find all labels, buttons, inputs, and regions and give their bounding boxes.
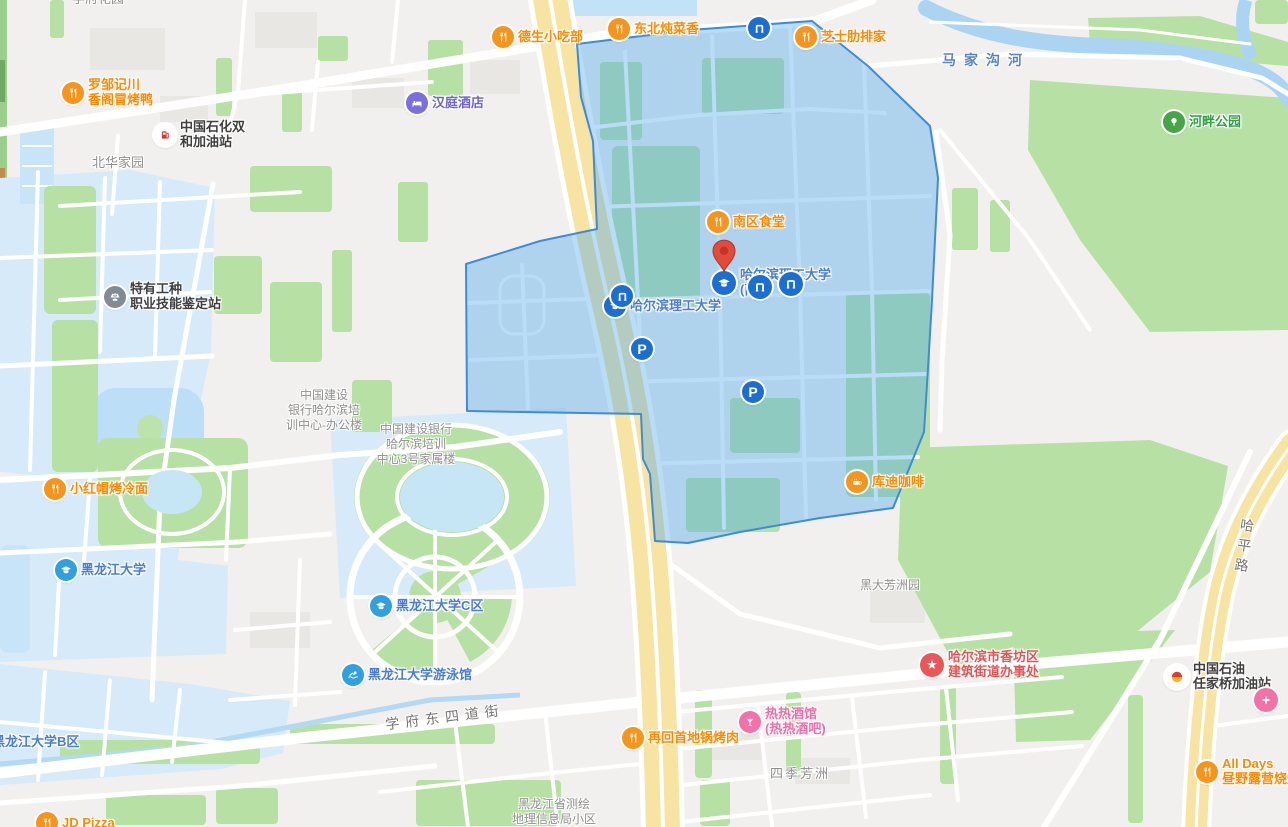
poi-hlju-swimming[interactable]: 黑龙江大学游泳馆	[342, 664, 472, 686]
campus-gate-icon-south-b[interactable]	[779, 272, 803, 296]
parking-icon-a[interactable]: P	[631, 338, 653, 360]
label-beihua: 北华家园	[92, 155, 144, 171]
poi-desheng-snack[interactable]: 德生小吃部	[492, 26, 583, 48]
campus-gate-icon-south-a[interactable]	[748, 275, 772, 299]
restaurant-icon	[62, 82, 84, 104]
poi-luozou-roast-duck[interactable]: 罗邹记川香阁冒烤鸭	[62, 78, 153, 108]
hotel-icon	[406, 92, 428, 114]
gas-station-icon	[1165, 665, 1189, 689]
scales-icon	[104, 286, 126, 308]
label-siji-fangzhou: 四季芳洲	[770, 766, 830, 782]
label-heida-fangzhou: 黑大芳洲园	[860, 578, 920, 593]
restaurant-icon	[608, 18, 630, 40]
poi-hlju-c[interactable]: 黑龙江大学C区	[370, 595, 483, 617]
river-label-majiagou: 马家沟河	[942, 50, 1030, 70]
label-ccb-dorm: 中国建设银行哈尔滨培训中心3号家属楼	[366, 422, 466, 467]
poi-hlju[interactable]: 黑龙江大学	[55, 559, 146, 581]
park-tree-icon	[1163, 111, 1185, 133]
poi-sinopec-gas-station[interactable]: 中国石化双和加油站	[154, 120, 245, 150]
parking-icon-b[interactable]: P	[742, 381, 764, 403]
label-xuefu-garden: 学府花园	[72, 0, 124, 7]
poi-hepan-park[interactable]: 河畔公园	[1163, 111, 1241, 133]
map-canvas[interactable]: 马家沟河 哈平路 学府东四道街 学府花园 北华家园 中国建设银行哈尔滨培训中心-…	[0, 0, 1288, 827]
poi-zaihushou-bbq[interactable]: 再回首地锅烤肉	[622, 727, 739, 749]
label-ccb-office: 中国建设银行哈尔滨培训中心-办公楼	[278, 388, 370, 433]
gas-station-icon	[154, 124, 176, 146]
location-pin[interactable]	[710, 238, 738, 279]
restaurant-icon	[1196, 761, 1218, 783]
restaurant-icon	[707, 211, 729, 233]
coffee-icon	[846, 471, 868, 493]
campus-gate-icon-west[interactable]	[611, 285, 633, 307]
poi-south-canteen[interactable]: 南区食堂	[707, 211, 785, 233]
poi-dongbei-stew[interactable]: 东北炖菜香	[608, 18, 699, 40]
campus-gate-icon-north[interactable]	[748, 17, 770, 39]
poi-hlju-b[interactable]: 黑龙江大学B区	[0, 731, 79, 753]
poi-zhishi-ribs[interactable]: 芝士肋排家	[795, 26, 886, 48]
poi-rere-bar[interactable]: 热热酒馆(热热酒吧)	[739, 707, 826, 737]
poi-clinic-partial[interactable]	[1254, 688, 1278, 712]
university-icon	[55, 559, 77, 581]
poi-alldays-bbq[interactable]: All Days昼野露营烧烤	[1196, 757, 1288, 787]
restaurant-icon	[44, 478, 66, 500]
poi-jd-pizza[interactable]: JD Pizza	[36, 812, 115, 827]
swimmer-icon	[342, 664, 364, 686]
restaurant-icon	[622, 727, 644, 749]
poi-hanting-hotel[interactable]: 汉庭酒店	[406, 92, 484, 114]
poi-kudi-coffee[interactable]: 库迪咖啡	[846, 471, 924, 493]
restaurant-icon	[36, 812, 58, 827]
cocktail-icon	[739, 711, 761, 733]
poi-skill-assessment-station[interactable]: 特有工种职业技能鉴定站	[104, 282, 221, 312]
medical-cross-icon	[1254, 688, 1278, 712]
label-cehui: 黑龙江省测绘地理信息局小区	[506, 797, 602, 827]
government-star-icon: ★	[920, 653, 944, 677]
university-icon	[370, 595, 392, 617]
poi-xiaohongmao[interactable]: 小红帽烤冷面	[44, 478, 148, 500]
restaurant-icon	[795, 26, 817, 48]
poi-subdistrict-office[interactable]: ★ 哈尔滨市香坊区建筑街道办事处	[920, 650, 1039, 680]
restaurant-icon	[492, 26, 514, 48]
